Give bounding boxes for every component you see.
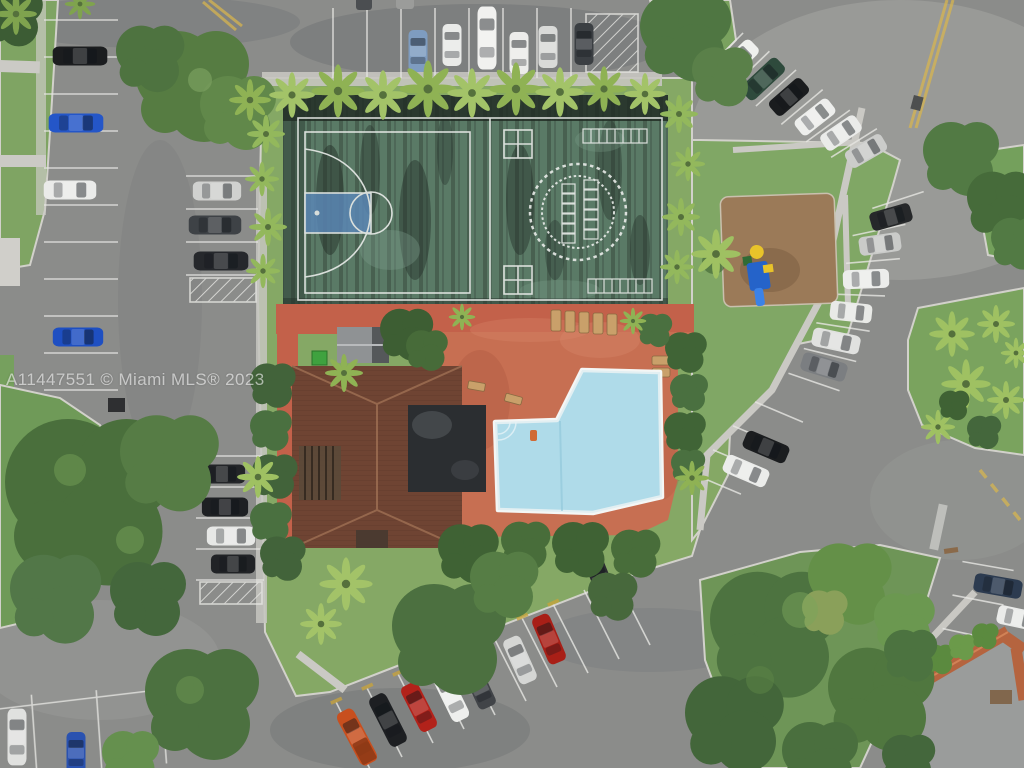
suv (843, 269, 890, 290)
tree (692, 47, 753, 106)
car-partial-top-1 (356, 0, 372, 10)
car (575, 23, 594, 65)
clubhouse (292, 366, 486, 548)
tree (116, 26, 184, 93)
car-partial-top-2 (396, 0, 414, 9)
courtyard-chairs (990, 690, 1012, 704)
pergola (299, 446, 341, 500)
car (49, 114, 104, 133)
green-dumpster (312, 351, 327, 365)
car (53, 328, 103, 347)
roof-pad-left-edge (0, 238, 20, 286)
dumpster-left-lot (108, 398, 125, 412)
car (443, 24, 462, 66)
playground (720, 193, 838, 307)
car (539, 26, 558, 68)
playground-palm (691, 229, 740, 278)
car (8, 709, 27, 766)
sports-court (283, 95, 668, 308)
pickup-truck (189, 216, 242, 235)
car (207, 527, 255, 546)
car (67, 732, 86, 768)
van (478, 7, 497, 70)
suv (194, 252, 249, 271)
car (44, 181, 97, 200)
no-parking-hatch-left (190, 278, 256, 302)
palm-tree (237, 456, 279, 498)
flat-roof-black (408, 405, 486, 492)
aerial-photo-stage: A11447551 © Miami MLS® 2023 (0, 0, 1024, 768)
car (193, 182, 241, 201)
aerial-photo (0, 0, 1024, 768)
clubhouse-porch (356, 530, 388, 548)
palm-tree (229, 79, 271, 121)
car (211, 555, 255, 574)
car (53, 47, 108, 66)
basketball-hoop (315, 211, 320, 216)
no-parking-hatch-top (586, 14, 638, 72)
palm-tree (675, 461, 709, 495)
no-parking-hatch-left-lower (200, 582, 262, 604)
pool-float (530, 430, 537, 441)
car (202, 498, 248, 517)
